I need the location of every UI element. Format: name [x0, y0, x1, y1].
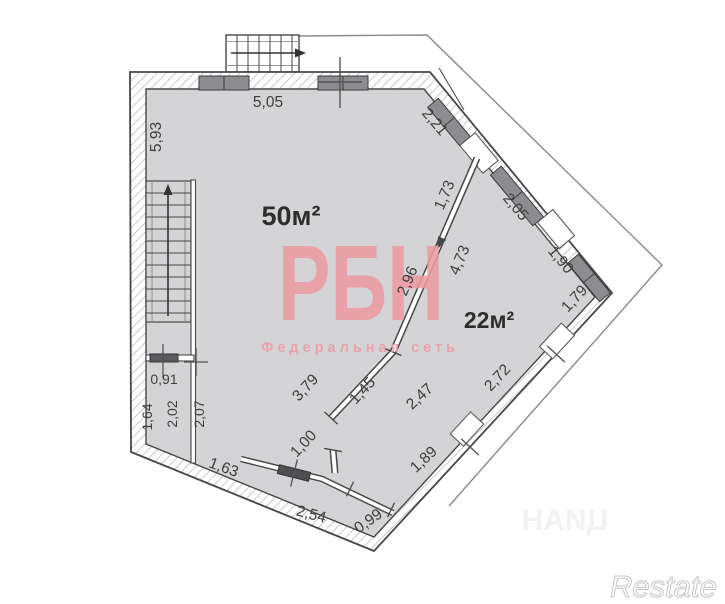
watermark-cian: ЦИАН: [522, 504, 609, 537]
floorplan-canvas: РБН Федеральная сеть ЦИАН Restate 50м² 2…: [0, 0, 725, 604]
internal-stairs-icon: [146, 181, 191, 322]
floorplan-drawing: РБН Федеральная сеть ЦИАН Restate 50м² 2…: [0, 0, 725, 604]
brand-logo: РБН: [278, 223, 444, 343]
dim-closet-width: 0,91: [150, 371, 177, 387]
room-label-main: 50м²: [262, 201, 321, 231]
watermark-brand: РБН Федеральная сеть: [261, 223, 459, 356]
dim-closet-height: 2,02: [164, 400, 180, 427]
entrance-stairs-icon: [226, 35, 306, 72]
brand-network-label: Федеральная сеть: [261, 340, 459, 356]
watermark-restate: Restate: [610, 569, 717, 604]
room-label-second: 22м²: [464, 307, 515, 333]
dim-top-wall: 5,05: [253, 94, 283, 111]
dim-closet-left: 1,64: [139, 403, 155, 430]
dim-room-side: 2,07: [191, 400, 207, 427]
dim-left-wall: 5,93: [148, 122, 165, 152]
